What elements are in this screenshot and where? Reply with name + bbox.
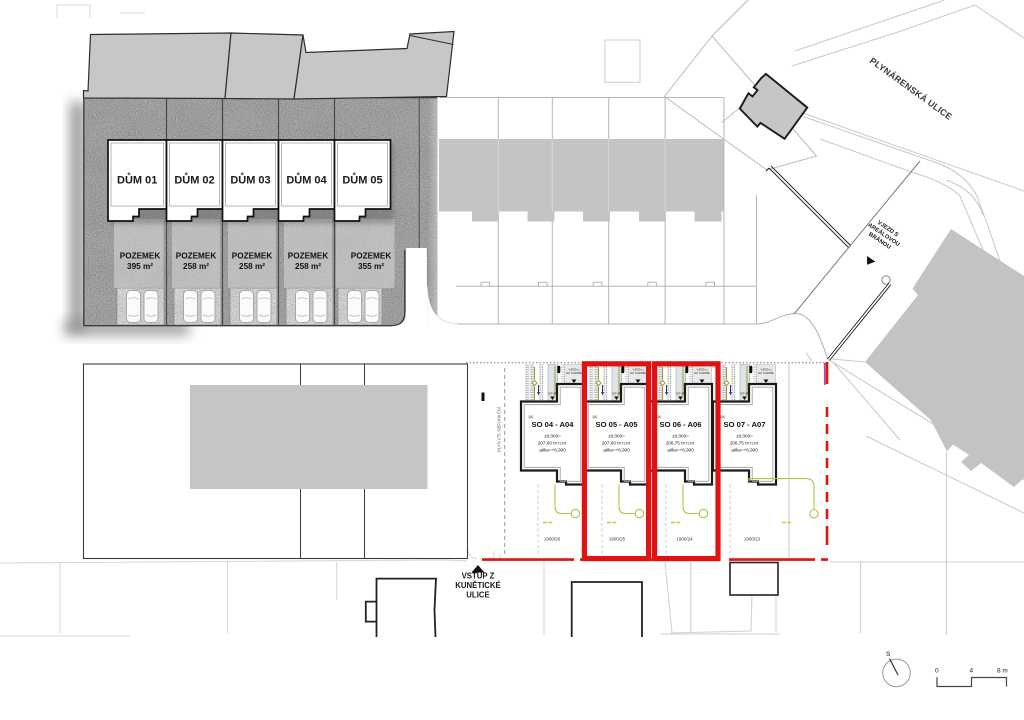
svg-text:±0,000=: ±0,000=	[608, 434, 625, 439]
svg-text:±0,000=: ±0,000=	[736, 434, 753, 439]
svg-text:DŮM 02: DŮM 02	[174, 173, 214, 187]
svg-text:POZEMEK: POZEMEK	[176, 252, 217, 261]
svg-text:4: 4	[970, 668, 974, 675]
svg-text:258 m²: 258 m²	[295, 262, 321, 271]
svg-text:atika=+6,900: atika=+6,900	[603, 448, 630, 453]
svg-text:SO 04 - A04: SO 04 - A04	[532, 420, 575, 429]
svg-text:VJEZD m: VJEZD m	[760, 368, 771, 372]
svg-text:206,75 m n.m.: 206,75 m n.m.	[730, 441, 759, 446]
svg-text:207,00 m n.m.: 207,00 m n.m.	[602, 441, 631, 446]
svg-text:395 m²: 395 m²	[127, 262, 153, 271]
svg-text:VSTUP: VSTUP	[740, 392, 749, 396]
svg-text:VSTUP: VSTUP	[612, 392, 621, 396]
svg-text:SO 05 - A05: SO 05 - A05	[596, 420, 639, 429]
svg-text:1900/24: 1900/24	[676, 537, 693, 542]
svg-text:KUNĚTICKÉ: KUNĚTICKÉ	[455, 581, 500, 590]
svg-text:8 m: 8 m	[997, 668, 1008, 675]
svg-text:355 m²: 355 m²	[358, 262, 384, 271]
svg-text:VSTUP Z: VSTUP Z	[462, 572, 495, 581]
svg-text:ULICE: ULICE	[466, 591, 489, 600]
svg-text:258 m²: 258 m²	[239, 262, 265, 271]
svg-text:SO 07 - A07: SO 07 - A07	[724, 420, 766, 429]
svg-text:258 m²: 258 m²	[183, 262, 209, 271]
svg-text:±0,000=: ±0,000=	[544, 434, 561, 439]
svg-text:0: 0	[935, 668, 939, 675]
svg-text:atika=+6,900: atika=+6,900	[667, 448, 694, 453]
svg-text:VJEZD m: VJEZD m	[568, 368, 579, 372]
svg-text:POZEMEK: POZEMEK	[232, 252, 273, 261]
svg-text:1900/23: 1900/23	[744, 537, 761, 542]
svg-text:atika=+6,900: atika=+6,900	[731, 448, 758, 453]
svg-text:S: S	[886, 651, 891, 658]
svg-text:1900/26: 1900/26	[544, 537, 561, 542]
svg-text:DŮM 01: DŮM 01	[117, 173, 157, 187]
svg-text:1900/25: 1900/25	[609, 537, 626, 542]
svg-text:DŮM 04: DŮM 04	[286, 173, 327, 187]
svg-text:±0,000=: ±0,000=	[672, 434, 689, 439]
svg-text:POZEMEK: POZEMEK	[351, 252, 392, 261]
svg-text:DŮM 05: DŮM 05	[342, 173, 382, 187]
svg-text:DŮM 03: DŮM 03	[230, 173, 270, 187]
svg-text:VSTUP: VSTUP	[548, 392, 557, 396]
svg-text:atika=+6,900: atika=+6,900	[539, 448, 566, 453]
svg-text:VSTUP: VSTUP	[676, 392, 685, 396]
svg-text:VJEZD m: VJEZD m	[696, 368, 707, 372]
svg-text:207,00 m n.m.: 207,00 m n.m.	[538, 441, 567, 446]
svg-text:206,75 m n.m.: 206,75 m n.m.	[666, 441, 695, 446]
svg-text:POZEMEK: POZEMEK	[288, 252, 329, 261]
svg-text:PLYN VTL NEFUNKČNÍ: PLYN VTL NEFUNKČNÍ	[497, 406, 502, 452]
svg-text:SO 06 - A06: SO 06 - A06	[660, 420, 702, 429]
svg-text:VJEZD m: VJEZD m	[632, 368, 643, 372]
svg-text:POZEMEK: POZEMEK	[120, 252, 161, 261]
